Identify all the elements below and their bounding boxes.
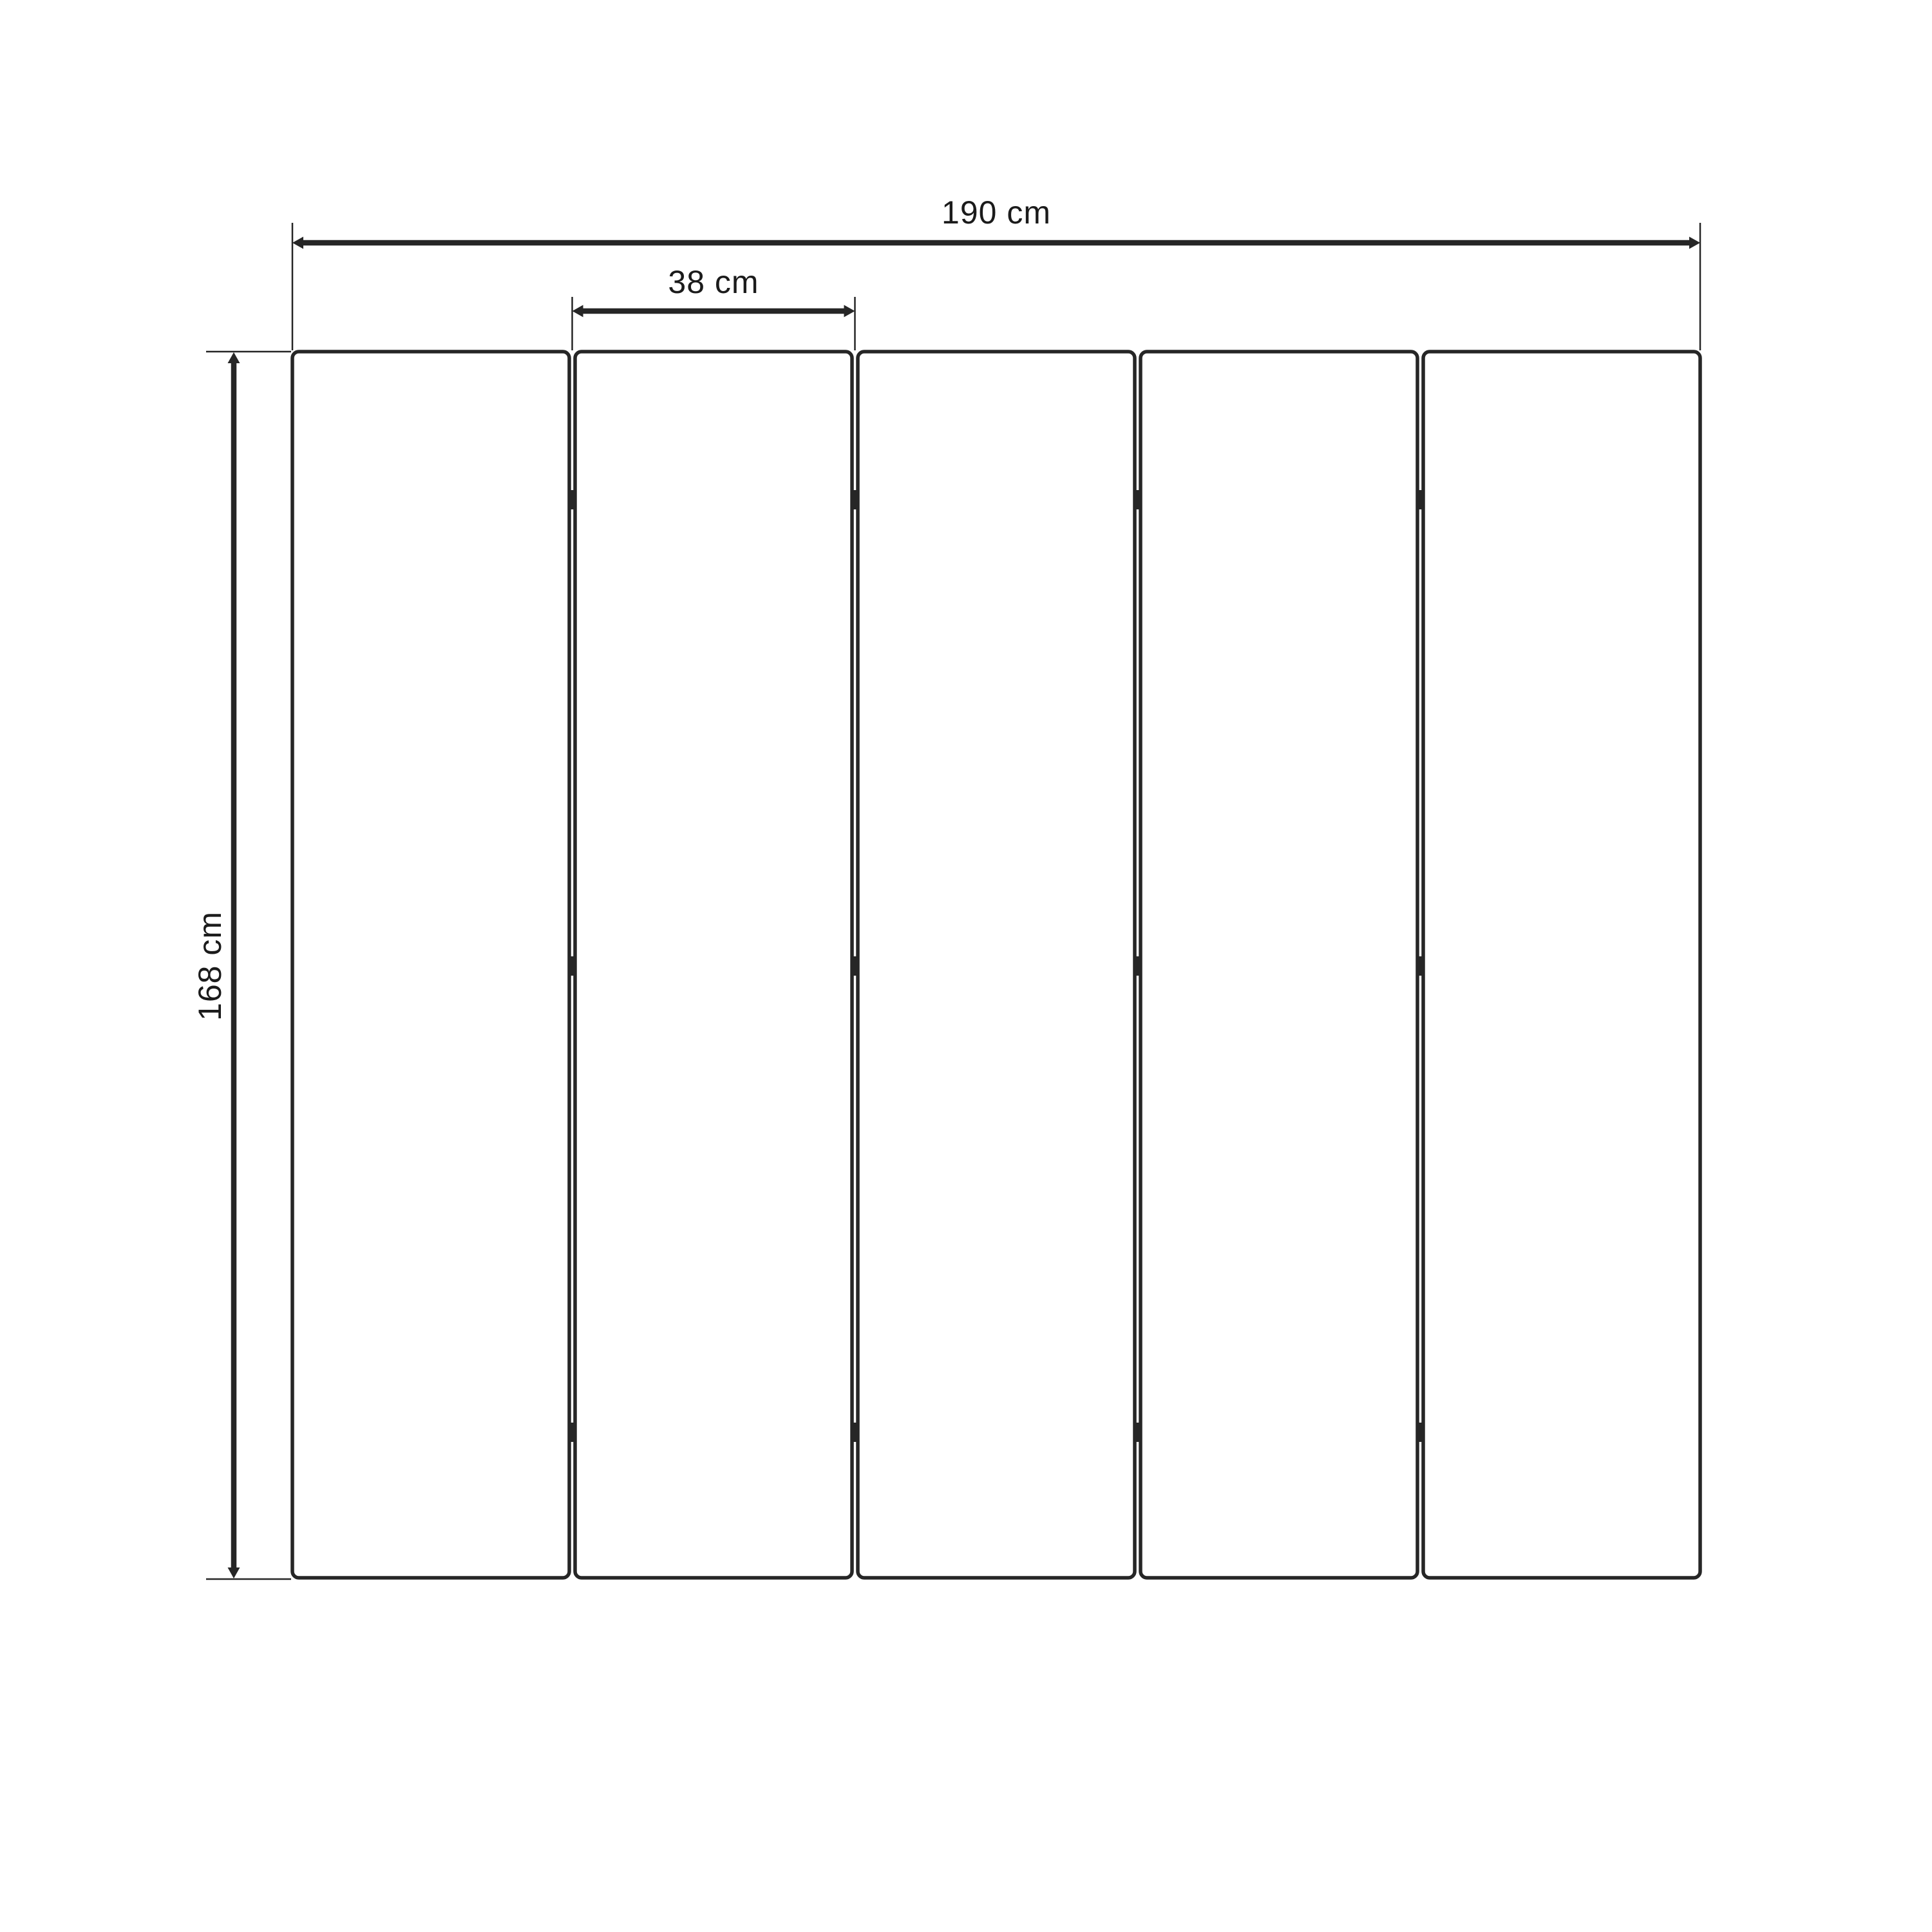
hinge-icon [1416,490,1425,509]
hinge-icon [1416,956,1425,976]
hinge-icon [568,1423,577,1442]
hinge-icon [851,1423,860,1442]
arrow-up-icon [228,352,240,363]
hinge-icon [568,956,577,976]
hinge-icon [851,956,860,976]
hinge-icon [851,490,860,509]
arrow-left-icon [573,305,583,317]
panel-width-dimension: 38 cm [573,264,855,350]
panels [292,352,1700,1578]
panel-width-label: 38 cm [668,264,759,300]
hinge-icon [568,490,577,509]
total-width-label: 190 cm [942,194,1051,231]
arrow-down-icon [228,1567,240,1578]
arrow-left-icon [292,237,303,249]
hinge-icon [1133,956,1142,976]
panel-2 [575,352,852,1578]
arrow-right-icon [1689,237,1700,249]
folding-screen-dimension-diagram: 190 cm 38 cm 168 cm [0,0,1932,1932]
panel-1 [292,352,569,1578]
arrow-right-icon [844,305,855,317]
height-label: 168 cm [192,911,228,1021]
panel-5 [1423,352,1700,1578]
panel-3 [858,352,1135,1578]
height-dimension: 168 cm [192,352,291,1579]
panel-4 [1141,352,1417,1578]
hinge-icon [1416,1423,1425,1442]
total-width-dimension: 190 cm [292,194,1700,350]
hinge-icon [1133,1423,1142,1442]
hinge-icon [1133,490,1142,509]
